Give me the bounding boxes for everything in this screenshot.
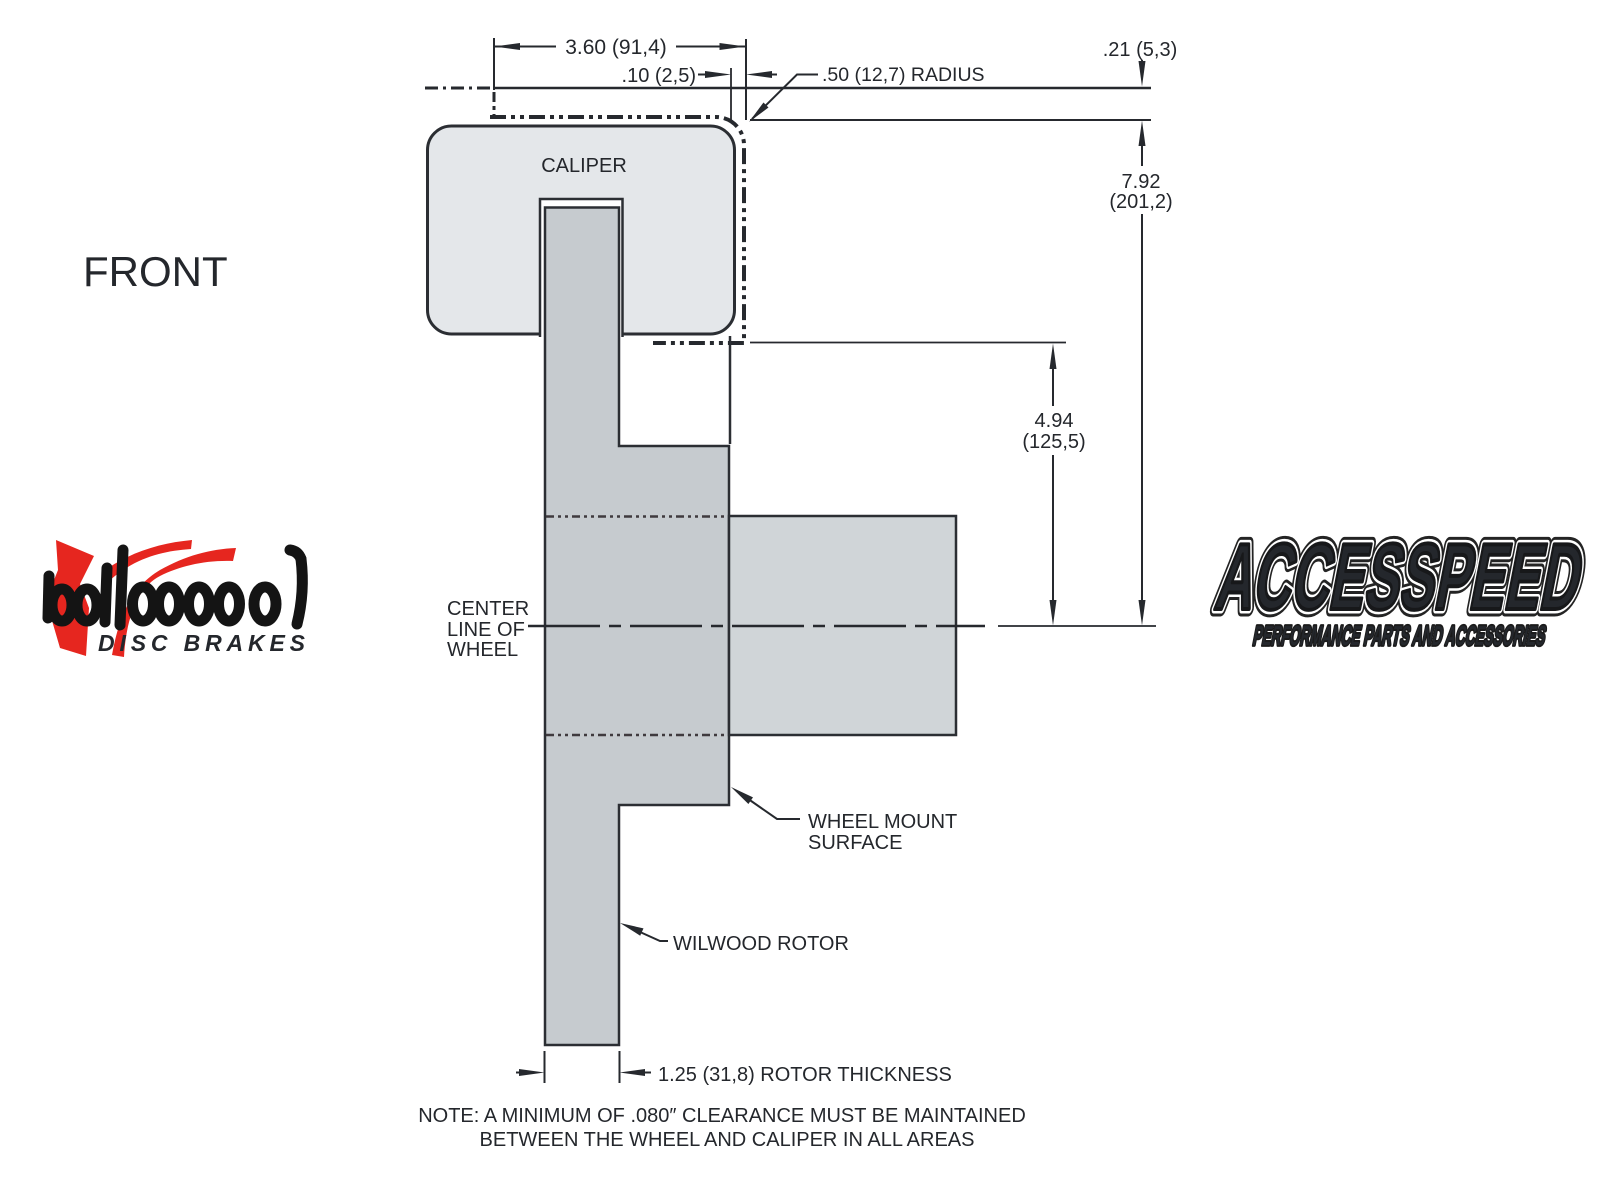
svg-text:1.25 (31,8) ROTOR THICKNESS: 1.25 (31,8) ROTOR THICKNESS	[658, 1064, 952, 1086]
svg-text:4.94: 4.94	[1035, 410, 1074, 432]
svg-text:WHEEL: WHEEL	[447, 639, 518, 661]
svg-text:CENTER: CENTER	[447, 598, 529, 620]
svg-text:.10 (2,5): .10 (2,5)	[622, 65, 696, 87]
svg-text:(125,5): (125,5)	[1022, 431, 1085, 453]
svg-text:(201,2): (201,2)	[1109, 191, 1172, 213]
svg-text:.21 (5,3): .21 (5,3)	[1103, 39, 1177, 61]
svg-text:BETWEEN THE WHEEL AND CALIPER: BETWEEN THE WHEEL AND CALIPER IN ALL ARE…	[480, 1129, 975, 1151]
svg-text:WHEEL MOUNT: WHEEL MOUNT	[808, 811, 957, 833]
svg-text:LINE OF: LINE OF	[447, 619, 525, 641]
svg-text:.50 (12,7) RADIUS: .50 (12,7) RADIUS	[822, 64, 985, 86]
svg-text:CALIPER: CALIPER	[541, 155, 627, 177]
svg-text:3.60 (91,4): 3.60 (91,4)	[565, 36, 667, 59]
svg-text:7.92: 7.92	[1122, 171, 1161, 193]
svg-text:SURFACE: SURFACE	[808, 832, 902, 854]
svg-text:WILWOOD ROTOR: WILWOOD ROTOR	[673, 933, 849, 955]
svg-text:ACCESSPEED: ACCESSPEED	[1209, 525, 1592, 630]
svg-text:NOTE: A MINIMUM OF .080″ CLEAR: NOTE: A MINIMUM OF .080″ CLEARANCE MUST …	[418, 1105, 1026, 1127]
svg-text:FRONT: FRONT	[83, 248, 228, 295]
svg-text:PERFORMANCE PARTS AND ACCESSOR: PERFORMANCE PARTS AND ACCESSORIES	[1251, 620, 1549, 651]
